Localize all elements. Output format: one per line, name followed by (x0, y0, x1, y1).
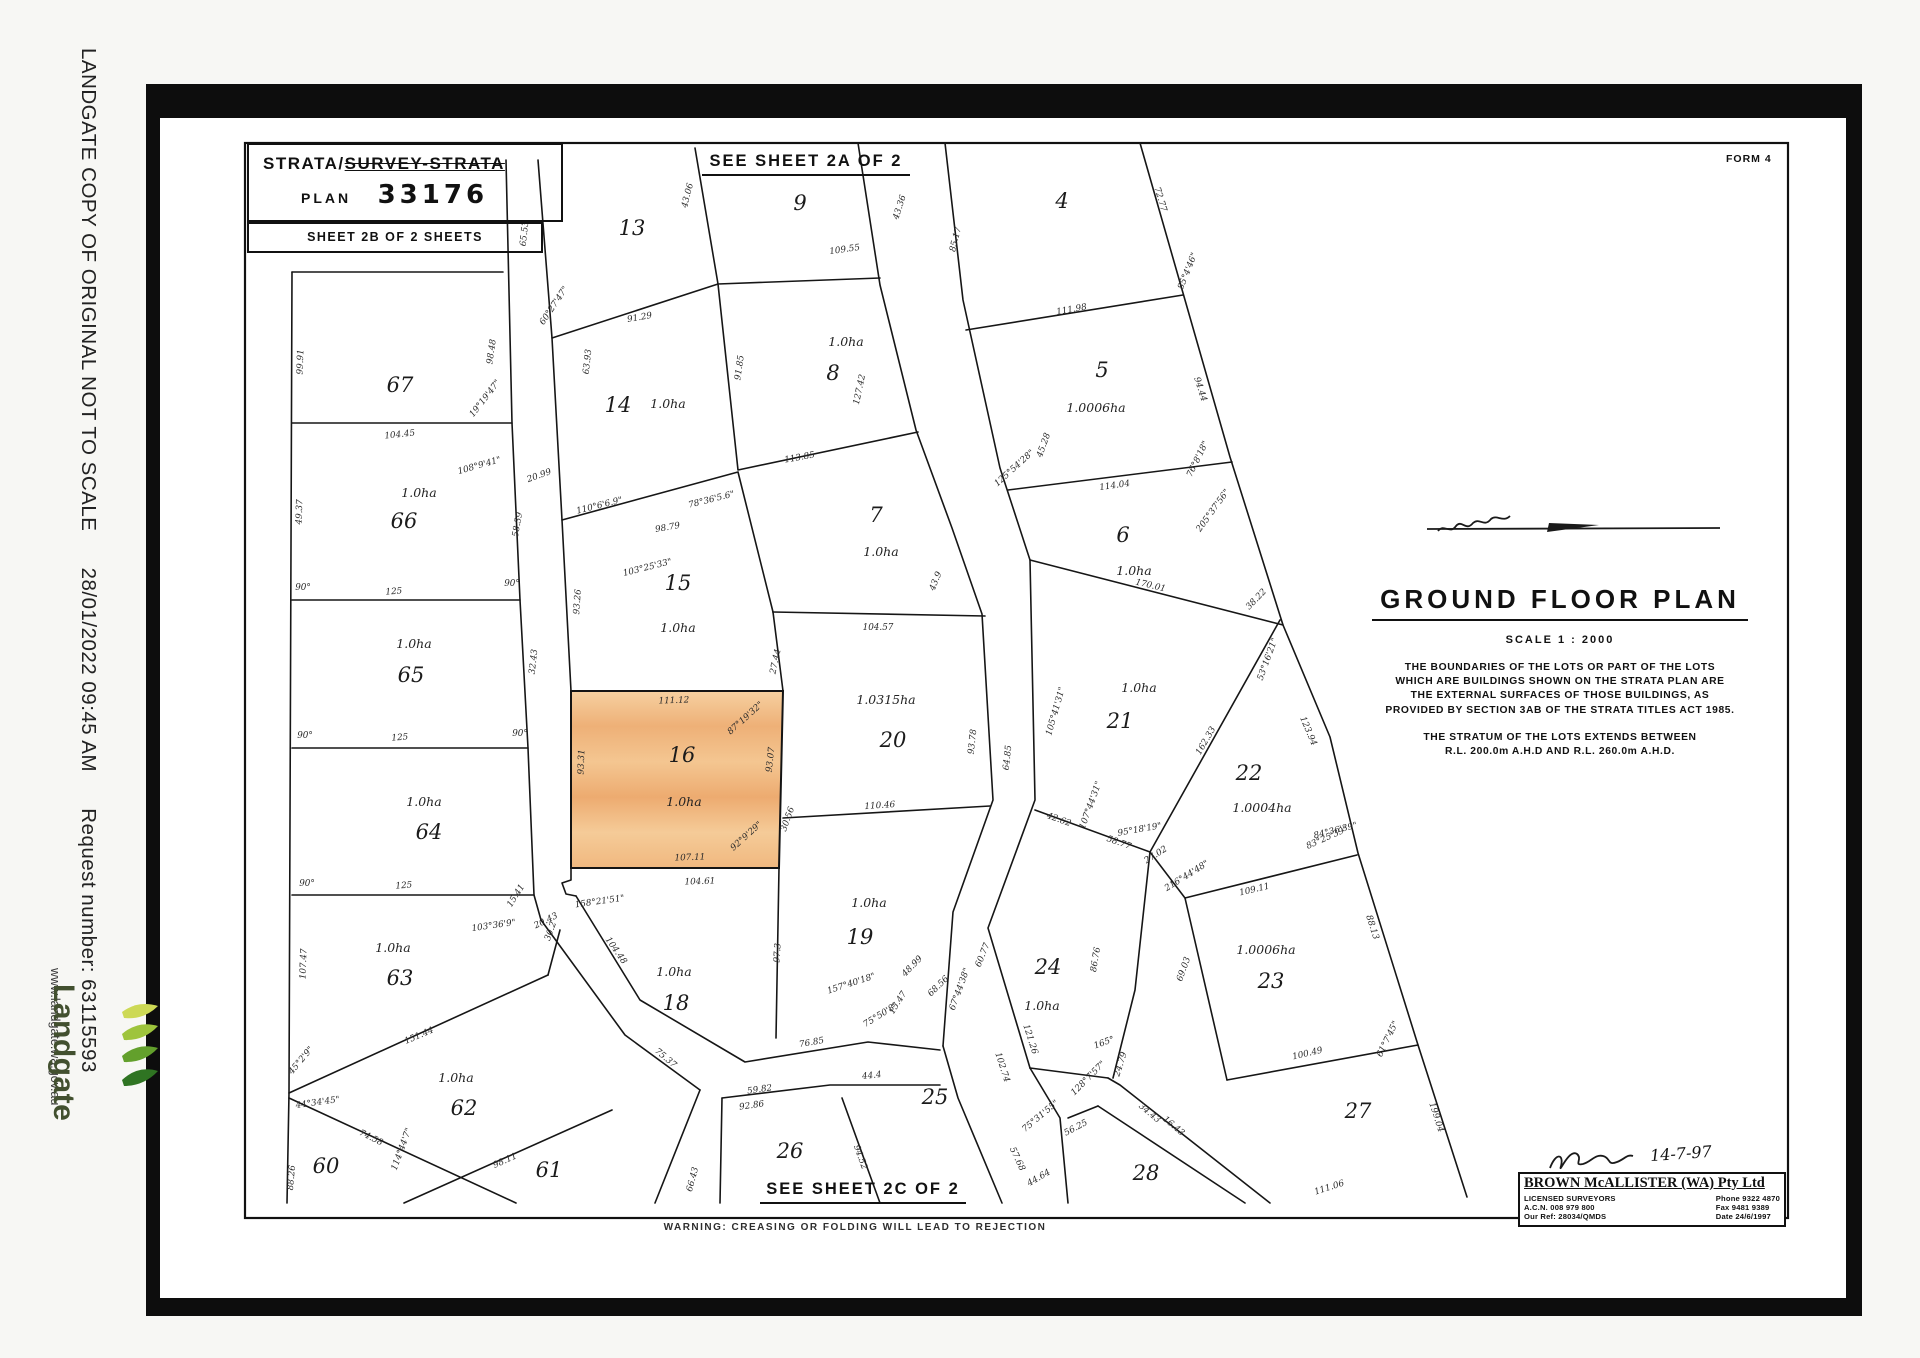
dimension-label: 111.06 (1313, 1178, 1346, 1197)
dimension-label: 110.46 (864, 800, 896, 812)
note-line: THE STRATUM OF THE LOTS EXTENDS BETWEEN (1348, 731, 1772, 745)
dimension-label: 43.9 (927, 570, 944, 593)
scanned-strata-plan: { "sidebar": { "notice": "LANDGATE COPY … (0, 0, 1920, 1358)
lot-area-15: 1.0ha (660, 620, 695, 635)
dimension-label: 125 (391, 732, 409, 743)
surveyor-details-left: LICENSED SURVEYORS A.C.N. 008 979 800 Ou… (1524, 1194, 1616, 1222)
lot-area-16: 1.0ha (666, 794, 701, 809)
dimension-label: 66.43 (685, 1166, 701, 1193)
surveyor-box: BROWN McALLISTER (WA) Pty Ltd LICENSED S… (1518, 1172, 1786, 1227)
dimension-label: 205°37'56" (1194, 488, 1232, 535)
dimension-label: 128°7'57" (1069, 1059, 1108, 1098)
dim-labels: 99.9198.4819°19'47"104.4549.3758.39108°9… (286, 182, 1445, 1198)
lot-area-5: 1.0006ha (1066, 400, 1125, 415)
dimension-label: 98.79 (654, 521, 681, 535)
dimension-label: 170.01 (1134, 578, 1166, 595)
lot-area-63: 1.0ha (375, 940, 410, 955)
lot-number-21: 21 (1106, 709, 1134, 733)
lot-number-19: 19 (847, 925, 874, 949)
dimension-label: 127.42 (852, 373, 868, 406)
lot-number-13: 13 (619, 216, 646, 240)
dimension-label: 38.22 (1244, 587, 1269, 612)
lot-area-18: 1.0ha (656, 964, 691, 979)
lot-number-25: 25 (921, 1085, 949, 1109)
dimension-label: 78°36'5.6" (687, 489, 735, 510)
note-line: THE BOUNDARIES OF THE LOTS OR PART OF TH… (1348, 661, 1772, 675)
lot-number-4: 4 (1054, 189, 1068, 213)
dimension-label: 97.3 (772, 942, 783, 963)
dimension-label: 93.26 (572, 589, 584, 615)
plan-type-struck: SURVEY-STRATA (345, 154, 505, 173)
dimension-label: 58.39 (511, 511, 525, 538)
lot-number-15: 15 (665, 571, 692, 595)
dimension-label: 107°44'31" (1078, 780, 1105, 830)
warning-text: WARNING: CREASING OR FOLDING WILL LEAD T… (640, 1222, 1070, 1233)
signature-row: 14-7-97 (1518, 1142, 1786, 1172)
dimension-label: 27.02 (1142, 844, 1170, 867)
dimension-label: 109.55 (829, 243, 861, 257)
dimension-label: 48.99 (900, 954, 926, 980)
lot-number-61: 61 (536, 1158, 563, 1182)
lot-area-7: 1.0ha (863, 544, 898, 559)
dimension-label: 98.48 (485, 338, 498, 365)
note-line: WHICH ARE BUILDINGS SHOWN ON THE STRATA … (1348, 675, 1772, 689)
lot-area-20: 1.0315ha (856, 692, 915, 707)
dimension-label: 94.52 (851, 1144, 869, 1171)
dimension-label: 199.04 (1426, 1101, 1445, 1133)
plan-type-heading: STRATA/SURVEY-STRATA (263, 154, 561, 174)
dimension-label: 125 (385, 586, 403, 597)
dimension-label: 44°34'45" (294, 1095, 340, 1111)
dimension-label: 76°8'18" (1185, 439, 1211, 478)
dimension-label: 157°40'18" (826, 972, 877, 997)
dimension-label: 42.62 (1044, 811, 1072, 829)
dimension-label: 91.85 (733, 354, 746, 381)
dimension-label: 95°18'19" (1117, 821, 1163, 839)
dimension-label: 111.12 (658, 695, 690, 706)
lot-number-9: 9 (793, 191, 806, 215)
dimension-label: 98.11 (492, 1151, 519, 1170)
dimension-label: 24.79 (1112, 1050, 1130, 1078)
lot-number-6: 6 (1116, 523, 1129, 547)
lot-area-24: 1.0ha (1024, 998, 1059, 1013)
dimension-label: 93.31 (577, 749, 588, 775)
lot-number-18: 18 (663, 991, 690, 1015)
lot-number-26: 26 (776, 1139, 804, 1163)
lot-area-23: 1.0006ha (1236, 942, 1295, 957)
dimension-label: 30.56 (779, 805, 797, 832)
dimension-label: 114.04 (1099, 479, 1131, 493)
surveyor-detail: Phone 9322 4870 (1716, 1194, 1780, 1203)
lot-number-62: 62 (451, 1096, 478, 1120)
lot-labels: 1394141.0ha81.0ha51.0006ha151.0ha71.0ha6… (313, 189, 1372, 1185)
dimension-label: 59.82 (747, 1083, 774, 1096)
plan-label: PLAN (301, 190, 351, 206)
lot-number-24: 24 (1034, 955, 1062, 979)
lot-number-28: 28 (1132, 1161, 1160, 1185)
surveyor-detail: Date 24/6/1997 (1716, 1212, 1780, 1221)
lot-boundary-lines (287, 143, 1467, 1203)
lot-number-23: 23 (1257, 969, 1285, 993)
form-label: FORM 4 (1726, 153, 1772, 165)
lot-number-67: 67 (387, 373, 414, 397)
lot-number-27: 27 (1344, 1099, 1372, 1123)
lot-number-64: 64 (416, 820, 443, 844)
lot-area-21: 1.0ha (1121, 680, 1156, 695)
annotation-scribble (1427, 516, 1720, 532)
ground-floor-plan-notes: GROUND FLOOR PLAN SCALE 1 : 2000 THE BOU… (1348, 584, 1772, 759)
dimension-label: 88.26 (286, 1164, 298, 1190)
lot-number-8: 8 (826, 361, 839, 385)
lot-number-65: 65 (398, 663, 425, 687)
dimension-label: 32.43 (528, 648, 541, 674)
dimension-label: 64.85 (1002, 744, 1015, 770)
stratum-note: THE STRATUM OF THE LOTS EXTENDS BETWEEN … (1348, 731, 1772, 759)
dimension-label: 85.17 (948, 226, 964, 253)
dimension-label: 107.11 (674, 852, 705, 863)
dimension-label: 74.58 (357, 1128, 384, 1148)
dimension-label: 113.85 (784, 450, 816, 465)
lot-area-62: 1.0ha (438, 1070, 473, 1085)
dimension-label: 60.77 (974, 941, 993, 968)
dimension-label: 85°4'46" (1176, 251, 1200, 291)
dimension-label: 107.47 (298, 948, 309, 980)
dimension-label: 60°27'47" (538, 285, 571, 327)
dimension-label: 43.06 (680, 182, 696, 210)
dimension-label: 19°19'47" (468, 378, 503, 419)
lot-area-65: 1.0ha (396, 636, 431, 651)
dimension-label: 49.37 (295, 499, 306, 526)
see-sheet-2a-ref: SEE SHEET 2A OF 2 (702, 152, 910, 176)
dimension-label: 69.03 (1175, 955, 1193, 982)
dimension-label: 92.86 (739, 1099, 766, 1112)
lot-area-22: 1.0004ha (1232, 800, 1291, 815)
dimension-label: 103°36'9" (471, 918, 516, 934)
dimension-label: 121.26 (1020, 1023, 1039, 1056)
dimension-label: 45°2'9" (286, 1045, 316, 1078)
dimension-label: 61°7'45" (1375, 1019, 1401, 1058)
dimension-label: 67°44'38" (948, 967, 973, 1012)
lot-area-19: 1.0ha (851, 895, 886, 910)
lot-area-14: 1.0ha (650, 396, 685, 411)
lot-number-20: 20 (879, 728, 907, 752)
dimension-label: 151.44 (403, 1026, 435, 1047)
lot-area-64: 1.0ha (406, 794, 441, 809)
dimension-label: 93.78 (967, 728, 980, 754)
signature-date: 14-7-97 (1649, 1142, 1712, 1165)
sheet-label: SHEET 2B OF 2 SHEETS (247, 222, 543, 253)
dimension-label: 105°41'31" (1044, 686, 1067, 737)
dimension-label: 100.49 (1291, 1046, 1324, 1063)
see-sheet-2c-ref: SEE SHEET 2C OF 2 (760, 1180, 966, 1204)
dimension-label: 111.98 (1056, 302, 1088, 317)
lot-number-63: 63 (387, 966, 414, 990)
lot-number-22: 22 (1235, 761, 1263, 785)
ground-floor-plan-title: GROUND FLOOR PLAN (1372, 584, 1748, 621)
dimension-label: 158°21'51" (574, 894, 625, 911)
dimension-label: 75°31'55" (1020, 1098, 1060, 1134)
dimension-label: 102.74 (992, 1051, 1011, 1083)
dimension-label: 20.99 (525, 467, 553, 485)
note-line: THE EXTERNAL SURFACES OF THOSE BUILDINGS… (1348, 689, 1772, 703)
dimension-label: 63.93 (582, 348, 595, 374)
surveyor-block: 14-7-97 BROWN McALLISTER (WA) Pty Ltd LI… (1518, 1142, 1786, 1227)
note-line: PROVIDED BY SECTION 3AB OF THE STRATA TI… (1348, 704, 1772, 718)
dimension-label: 125°54'28" (993, 448, 1037, 489)
surveyor-detail: Fax 9481 9389 (1716, 1203, 1780, 1212)
dimension-label: 72.77 (1151, 186, 1168, 213)
dimension-label: 125 (395, 880, 413, 891)
lot-area-6: 1.0ha (1116, 563, 1151, 578)
lot-number-5: 5 (1095, 358, 1108, 382)
dimension-label: 90° (295, 583, 311, 593)
dimension-label: 99.91 (296, 349, 307, 375)
dimension-label: 43.36 (891, 193, 909, 221)
dimension-label: 165° (1093, 1035, 1116, 1052)
surveyor-details-right: Phone 9322 4870 Fax 9481 9389 Date 24/6/… (1716, 1194, 1780, 1222)
boundaries-note: THE BOUNDARIES OF THE LOTS OR PART OF TH… (1348, 661, 1772, 718)
dimension-label: 76.85 (798, 1036, 825, 1050)
dimension-label: 45.28 (1035, 431, 1053, 459)
lot-area-8: 1.0ha (828, 334, 863, 349)
plan-number: 33176 (378, 180, 488, 210)
note-line: R.L. 200.0m A.H.D AND R.L. 260.0m A.H.D. (1348, 745, 1772, 759)
dimension-label: 53°16'21" (1256, 637, 1281, 682)
surveyor-detail: Our Ref: 28034/QMDS (1524, 1212, 1616, 1221)
lot-number-14: 14 (605, 393, 632, 417)
dimension-label: 123.94 (1297, 715, 1318, 747)
dimension-label: 57.68 (1007, 1146, 1027, 1173)
dimension-label: 44.64 (1025, 1168, 1053, 1190)
dimension-label: 90° (299, 879, 315, 889)
dimension-label: 56.25 (1063, 1118, 1090, 1139)
dimension-label: 108°9'41" (457, 455, 502, 477)
dimension-label: 90° (504, 579, 520, 589)
dimension-label: 90° (297, 731, 313, 741)
lot-number-7: 7 (869, 503, 883, 527)
dimension-label: 114°44'7" (390, 1127, 415, 1172)
scale-text: SCALE 1 : 2000 (1348, 634, 1772, 646)
surveyor-firm: BROWN McALLISTER (WA) Pty Ltd (1524, 1175, 1780, 1192)
dimension-label: 110°6'6.9" (575, 495, 623, 516)
dimension-label: 86.76 (1089, 946, 1103, 973)
lot-number-60: 60 (313, 1154, 340, 1178)
title-block: STRATA/SURVEY-STRATA PLAN 33176 (247, 143, 563, 222)
dimension-label: 104.61 (684, 876, 715, 887)
surveyor-detail: LICENSED SURVEYORS (1524, 1194, 1616, 1203)
dimension-label: 94.44 (1191, 376, 1208, 403)
plan-type-prefix: STRATA/ (263, 154, 345, 173)
dimension-label: 104.57 (863, 623, 894, 633)
dimension-label: 90° (512, 729, 528, 739)
dimension-label: 104.45 (384, 428, 416, 441)
dimension-label: 34.43 (1136, 1102, 1162, 1126)
surveyor-detail: A.C.N. 008 979 800 (1524, 1203, 1616, 1212)
dimension-label: 15.41 (505, 883, 527, 910)
lot-number-66: 66 (391, 509, 418, 533)
plan-number-row: PLAN 33176 (301, 180, 561, 210)
lot-area-66: 1.0ha (401, 485, 436, 500)
dimension-label: 44.4 (861, 1070, 883, 1082)
lot-number-16: 16 (669, 743, 696, 767)
